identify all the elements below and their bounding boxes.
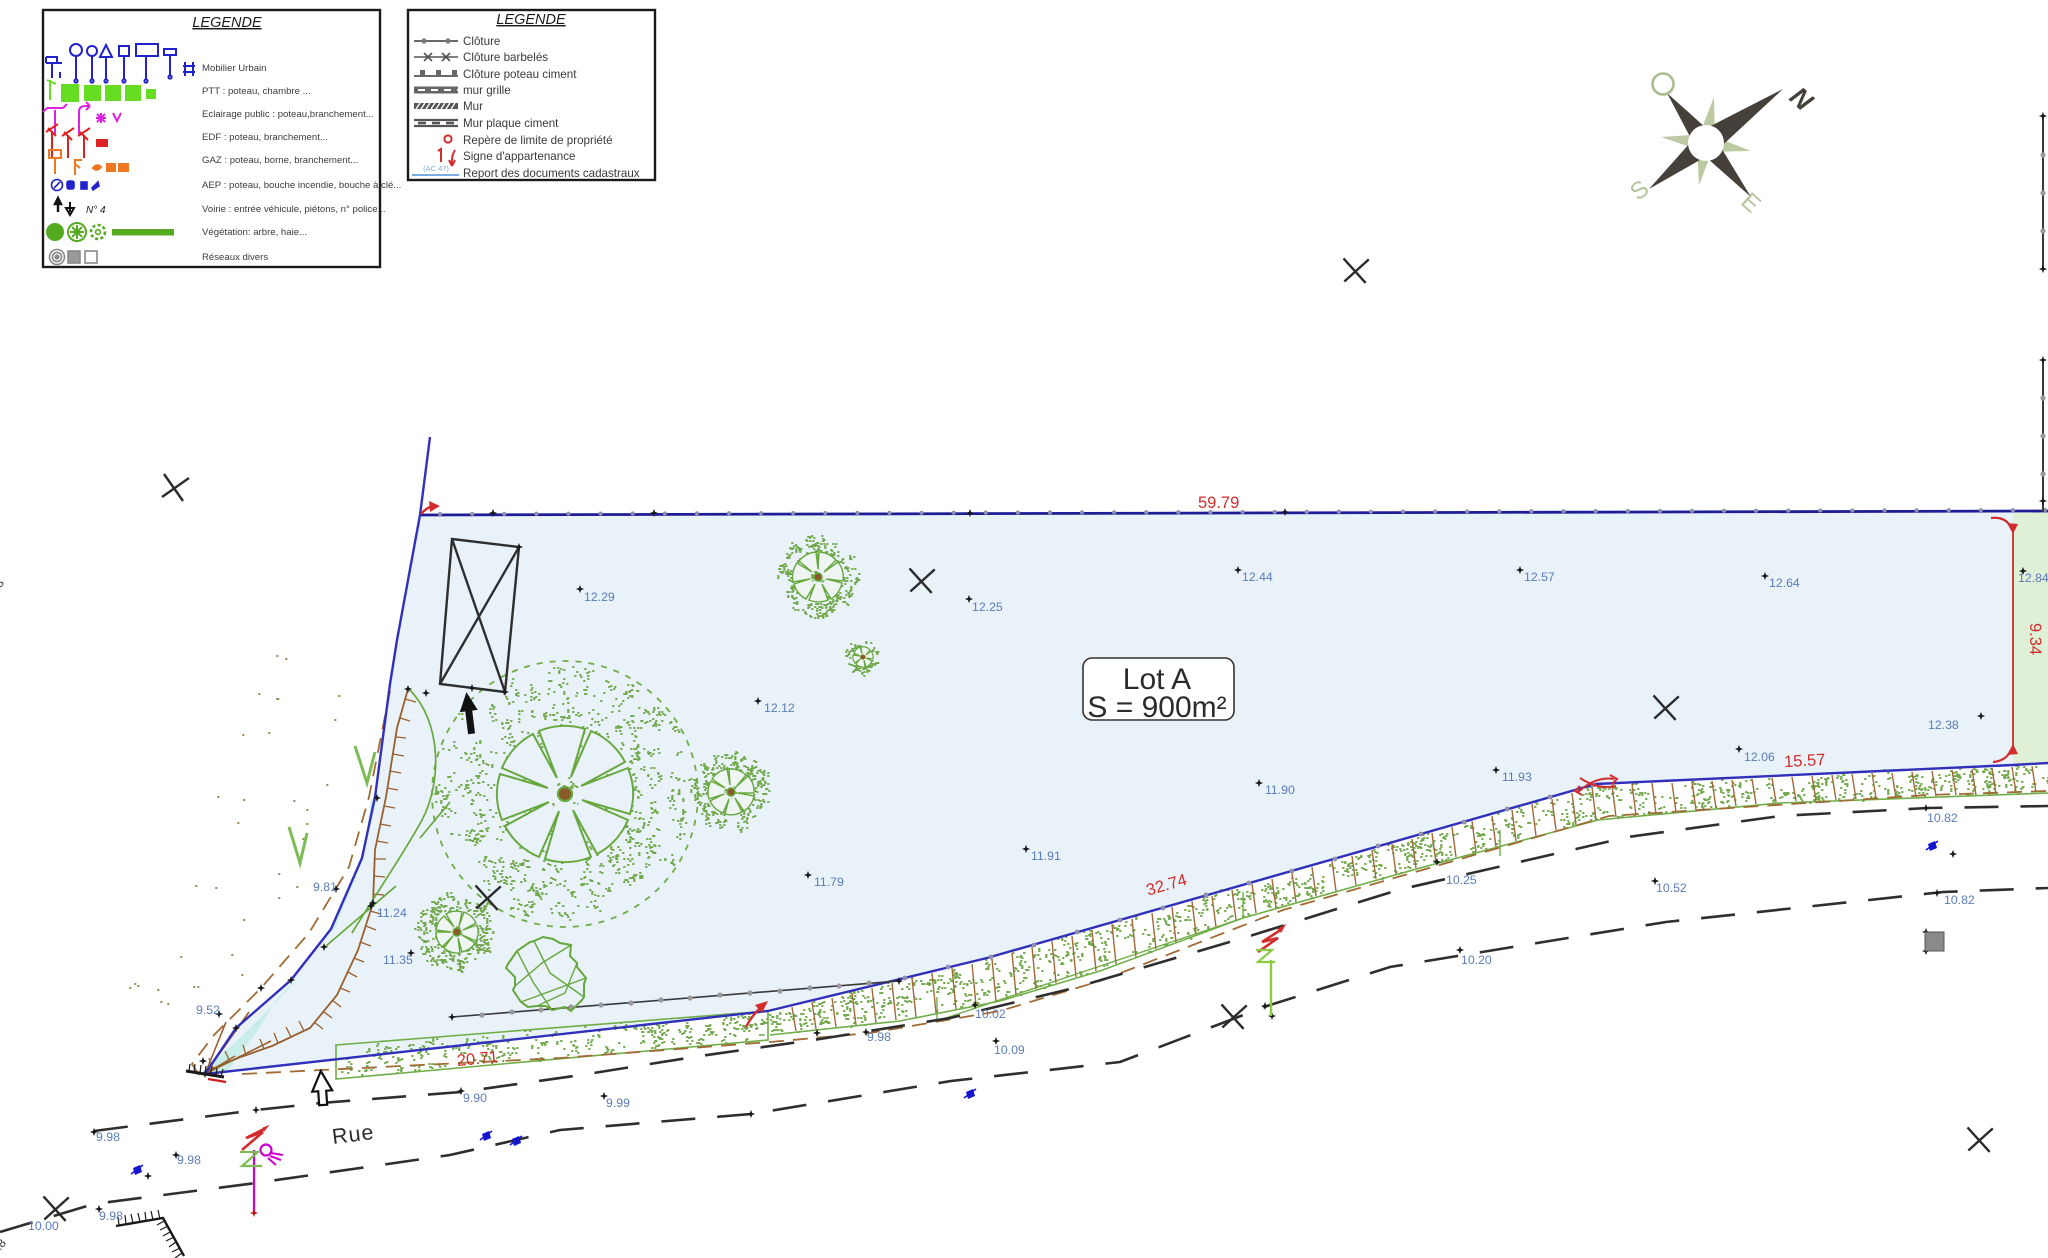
svg-text:12.12: 12.12 bbox=[764, 701, 795, 715]
svg-text:11.24: 11.24 bbox=[377, 906, 407, 920]
svg-text:10.09: 10.09 bbox=[994, 1043, 1025, 1057]
svg-text:12.25: 12.25 bbox=[972, 600, 1003, 614]
svg-text:11.90: 11.90 bbox=[1265, 783, 1295, 797]
svg-text:10.02: 10.02 bbox=[975, 1007, 1006, 1021]
svg-text:S = 900m²: S = 900m² bbox=[1087, 691, 1226, 724]
svg-text:Voirie : entrée véhicule, piét: Voirie : entrée véhicule, piétons, n° po… bbox=[202, 204, 386, 215]
svg-text:N° 4: N° 4 bbox=[86, 205, 106, 216]
svg-text:10.82: 10.82 bbox=[1927, 811, 1958, 825]
svg-text:9.98: 9.98 bbox=[99, 1209, 123, 1223]
svg-text:12.44: 12.44 bbox=[1242, 570, 1273, 584]
svg-text:11.91: 11.91 bbox=[1031, 849, 1061, 863]
svg-text:9.98: 9.98 bbox=[177, 1153, 201, 1167]
svg-text:10.00: 10.00 bbox=[28, 1219, 59, 1233]
svg-text:12.57: 12.57 bbox=[1524, 570, 1555, 584]
svg-text:Eclairage public : poteau,bran: Eclairage public : poteau,branchement... bbox=[202, 109, 374, 120]
svg-text:9.98: 9.98 bbox=[96, 1130, 120, 1144]
svg-text:(AC 47): (AC 47) bbox=[423, 164, 449, 173]
svg-text:PTT : poteau, chambre ...: PTT : poteau, chambre ... bbox=[202, 86, 311, 97]
svg-text:9.34: 9.34 bbox=[2026, 623, 2044, 655]
svg-text:10.82: 10.82 bbox=[1944, 893, 1975, 907]
svg-text:Clôture barbelés: Clôture barbelés bbox=[463, 51, 548, 64]
svg-text:9.81: 9.81 bbox=[313, 880, 337, 894]
svg-text:Repère de limite de propriété: Repère de limite de propriété bbox=[463, 134, 613, 147]
svg-text:9.98: 9.98 bbox=[867, 1030, 891, 1044]
svg-text:10.20: 10.20 bbox=[1461, 953, 1492, 967]
svg-text:59.79: 59.79 bbox=[1198, 494, 1239, 512]
svg-text:Clôture poteau ciment: Clôture poteau ciment bbox=[463, 68, 577, 81]
svg-text:11.35: 11.35 bbox=[383, 953, 413, 967]
svg-text:Mur: Mur bbox=[463, 100, 483, 113]
svg-text:Mur plaque ciment: Mur plaque ciment bbox=[463, 117, 559, 130]
svg-text:Clôture: Clôture bbox=[463, 35, 500, 48]
svg-text:Report des documents cadastrau: Report des documents cadastraux bbox=[463, 167, 640, 180]
svg-text:12.64: 12.64 bbox=[1769, 576, 1800, 590]
svg-text:15.57: 15.57 bbox=[1784, 751, 1826, 771]
svg-text:12.06: 12.06 bbox=[1744, 750, 1775, 764]
svg-text:Signe d'appartenance: Signe d'appartenance bbox=[463, 150, 575, 163]
svg-text:Réseaux divers: Réseaux divers bbox=[202, 252, 268, 263]
svg-text:GAZ : poteau, borne, brancheme: GAZ : poteau, borne, branchement... bbox=[202, 155, 358, 166]
svg-text:11.93: 11.93 bbox=[1502, 770, 1532, 784]
svg-text:LEGENDE: LEGENDE bbox=[496, 12, 566, 28]
svg-text:10.52: 10.52 bbox=[1656, 881, 1687, 895]
svg-text:Rue: Rue bbox=[331, 1120, 376, 1149]
svg-text:9.52: 9.52 bbox=[196, 1003, 220, 1017]
svg-text:12.38: 12.38 bbox=[1928, 718, 1959, 732]
svg-text:10.25: 10.25 bbox=[1446, 873, 1477, 887]
svg-text:EDF : poteau, branchement...: EDF : poteau, branchement... bbox=[202, 132, 328, 143]
svg-text:mur grille: mur grille bbox=[463, 84, 511, 97]
svg-text:12.84: 12.84 bbox=[2018, 571, 2048, 585]
svg-text:9.99: 9.99 bbox=[606, 1096, 630, 1110]
svg-text:9.90: 9.90 bbox=[463, 1091, 487, 1105]
svg-text:AEP : poteau, bouche incendie,: AEP : poteau, bouche incendie, bouche à … bbox=[202, 180, 401, 191]
svg-text:11.79: 11.79 bbox=[814, 875, 844, 889]
svg-text:LEGENDE: LEGENDE bbox=[192, 15, 262, 31]
svg-text:12.29: 12.29 bbox=[584, 590, 615, 604]
svg-text:Végétation: arbre, haie...: Végétation: arbre, haie... bbox=[202, 227, 307, 238]
svg-text:Mobilier Urbain: Mobilier Urbain bbox=[202, 63, 267, 74]
